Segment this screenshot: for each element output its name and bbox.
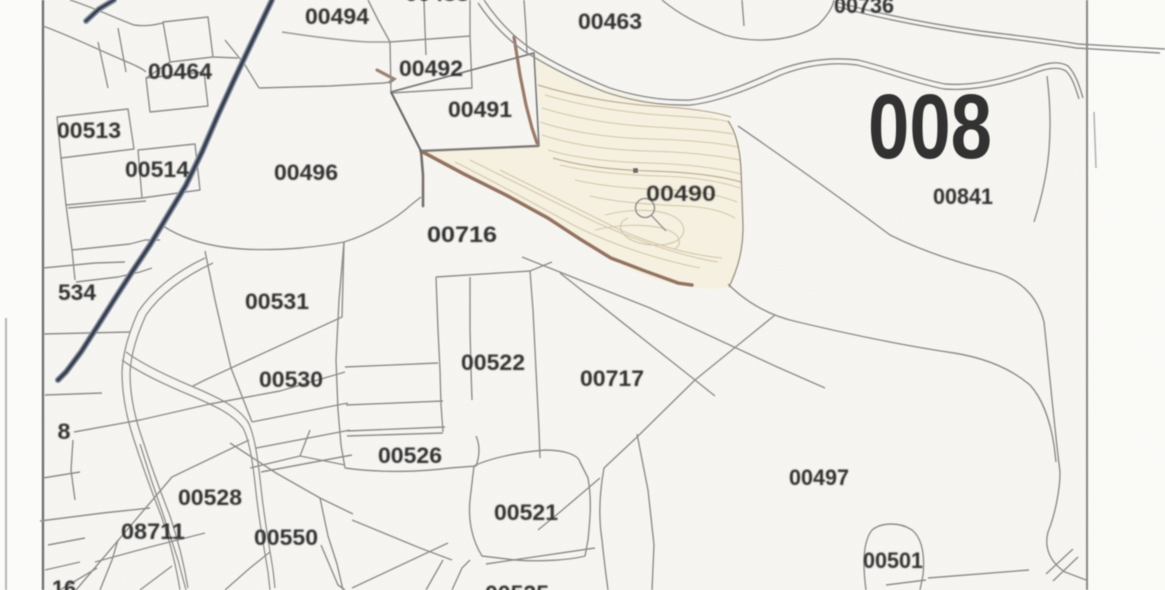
svg-text:16: 16	[52, 576, 76, 590]
svg-text:534: 534	[58, 280, 97, 305]
svg-text:00491: 00491	[448, 97, 512, 122]
svg-text:00716: 00716	[427, 222, 497, 247]
svg-text:08711: 08711	[121, 519, 185, 544]
svg-text:00497: 00497	[789, 465, 849, 490]
svg-text:00530: 00530	[259, 367, 323, 392]
svg-text:00736: 00736	[834, 0, 894, 18]
svg-text:00525: 00525	[485, 581, 549, 590]
svg-text:00513: 00513	[57, 118, 121, 143]
svg-text:00494: 00494	[305, 4, 370, 29]
svg-text:00531: 00531	[245, 289, 309, 314]
svg-text:00496: 00496	[274, 160, 338, 185]
svg-text:00501: 00501	[863, 548, 923, 573]
svg-text:8: 8	[58, 419, 71, 444]
svg-text:00463: 00463	[578, 9, 642, 34]
svg-text:00490: 00490	[646, 181, 716, 206]
svg-text:00841: 00841	[933, 184, 993, 209]
svg-text:00526: 00526	[378, 443, 442, 468]
svg-text:00464: 00464	[148, 59, 213, 84]
svg-text:00528: 00528	[178, 485, 242, 510]
svg-text:00522: 00522	[461, 350, 525, 375]
svg-text:00521: 00521	[494, 500, 558, 525]
svg-text:00514: 00514	[125, 157, 190, 182]
svg-text:00717: 00717	[580, 366, 644, 391]
svg-text:00488: 00488	[405, 0, 469, 6]
svg-text:008: 008	[868, 76, 992, 178]
svg-text:00492: 00492	[399, 56, 463, 81]
svg-text:00550: 00550	[254, 525, 318, 550]
